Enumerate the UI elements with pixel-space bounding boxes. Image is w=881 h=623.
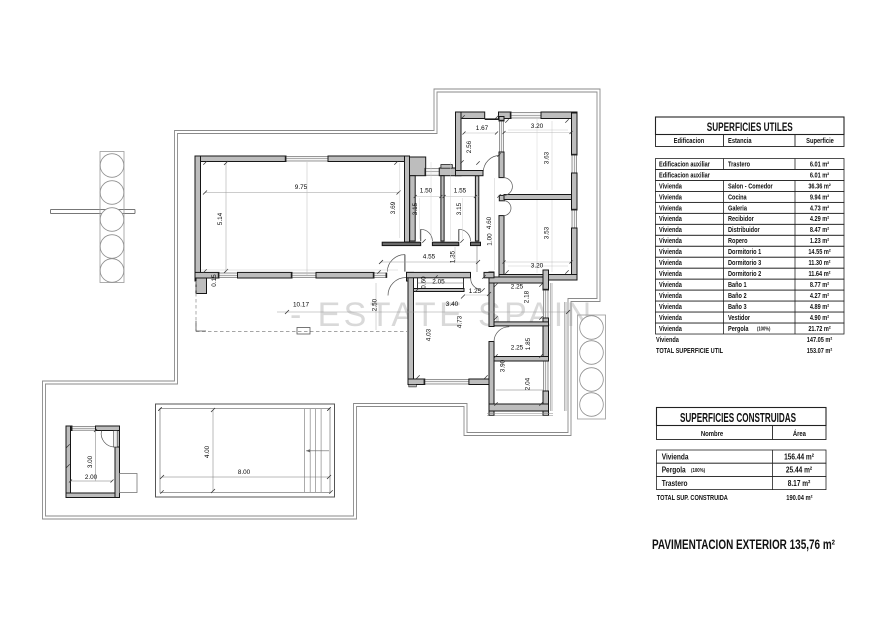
svg-text:Vivienda: Vivienda: [659, 314, 682, 322]
svg-text:36.36 m²: 36.36 m²: [808, 183, 830, 191]
svg-text:TOTAL SUP. CONSTRUIDA: TOTAL SUP. CONSTRUIDA: [657, 494, 728, 502]
svg-text:156.44 m²: 156.44 m²: [784, 452, 814, 462]
svg-text:8.17 m²: 8.17 m²: [788, 478, 811, 488]
svg-text:1.35: 1.35: [450, 250, 457, 263]
svg-text:147.05 m²: 147.05 m²: [807, 336, 832, 344]
svg-text:190.04 m²: 190.04 m²: [786, 494, 813, 502]
svg-text:6.01 m²: 6.01 m²: [810, 161, 829, 169]
svg-text:Vivienda: Vivienda: [659, 194, 682, 202]
svg-text:Pergola: Pergola: [662, 465, 687, 475]
svg-text:Edificacion auxiliar: Edificacion auxiliar: [659, 172, 710, 180]
svg-text:3.90: 3.90: [500, 359, 507, 372]
svg-text:Vivienda: Vivienda: [659, 282, 682, 290]
svg-text:2.05: 2.05: [432, 279, 445, 286]
svg-text:Vivienda: Vivienda: [659, 216, 682, 224]
svg-text:4.89 m²: 4.89 m²: [810, 303, 829, 311]
svg-text:Vivienda: Vivienda: [659, 303, 682, 311]
svg-text:Vivienda: Vivienda: [659, 292, 682, 300]
svg-text:4.27 m²: 4.27 m²: [810, 292, 829, 300]
svg-text:Baño 2: Baño 2: [728, 292, 747, 300]
svg-text:5.14: 5.14: [217, 212, 224, 225]
svg-text:2.50: 2.50: [372, 298, 379, 311]
svg-text:Baño 3: Baño 3: [728, 303, 747, 311]
svg-text:2.25: 2.25: [511, 284, 524, 291]
svg-text:3.53: 3.53: [544, 226, 551, 239]
svg-text:Vivienda: Vivienda: [662, 452, 689, 462]
svg-text:4.60: 4.60: [486, 216, 493, 229]
svg-text:1.67: 1.67: [476, 125, 489, 132]
svg-text:1.85: 1.85: [525, 337, 532, 350]
svg-text:Trastero: Trastero: [662, 478, 688, 488]
svg-text:Baño 1: Baño 1: [728, 282, 747, 290]
svg-text:21.72 m²: 21.72 m²: [808, 325, 830, 333]
svg-text:1.23 m²: 1.23 m²: [810, 238, 829, 246]
svg-text:Dormitorio 1: Dormitorio 1: [728, 249, 762, 257]
svg-text:Dormitorio 3: Dormitorio 3: [728, 260, 762, 268]
svg-text:11.30 m²: 11.30 m²: [808, 260, 830, 268]
svg-text:2.25: 2.25: [511, 345, 524, 352]
svg-text:8.77 m²: 8.77 m²: [810, 282, 829, 290]
svg-text:(100%): (100%): [757, 326, 771, 332]
svg-text:3.40: 3.40: [446, 301, 459, 308]
svg-text:4.73: 4.73: [457, 315, 464, 328]
svg-text:4.55: 4.55: [423, 254, 436, 261]
svg-text:Vivienda: Vivienda: [659, 238, 682, 246]
svg-text:3.63: 3.63: [544, 151, 551, 164]
svg-text:Vivienda: Vivienda: [656, 336, 679, 344]
svg-text:3.20: 3.20: [531, 123, 544, 130]
svg-text:Vivienda: Vivienda: [659, 227, 682, 235]
svg-text:Edificacion auxiliar: Edificacion auxiliar: [659, 161, 710, 169]
svg-text:3.15: 3.15: [456, 202, 463, 215]
svg-text:Estancia: Estancia: [728, 138, 752, 146]
svg-text:0.60: 0.60: [421, 276, 428, 289]
svg-text:4.90 m²: 4.90 m²: [810, 314, 829, 322]
svg-text:9.94 m²: 9.94 m²: [810, 194, 829, 202]
svg-text:1.55: 1.55: [454, 188, 467, 195]
svg-text:4.00: 4.00: [204, 445, 211, 458]
svg-text:14.55 m²: 14.55 m²: [808, 249, 830, 257]
svg-text:PAVIMENTACION EXTERIOR 135,76: PAVIMENTACION EXTERIOR 135,76 m²: [652, 537, 835, 552]
svg-text:Vivienda: Vivienda: [659, 183, 682, 191]
svg-text:Ropero: Ropero: [728, 238, 748, 246]
svg-text:Vivienda: Vivienda: [659, 260, 682, 268]
svg-text:3.00: 3.00: [87, 455, 94, 468]
svg-text:2.04: 2.04: [525, 377, 532, 390]
svg-text:Vivienda: Vivienda: [659, 325, 682, 333]
svg-text:2.18: 2.18: [524, 290, 531, 303]
svg-text:Distribuidor: Distribuidor: [728, 227, 760, 235]
svg-text:Trastero: Trastero: [728, 161, 750, 169]
svg-text:Edificacion: Edificacion: [674, 138, 705, 146]
svg-text:Pergola: Pergola: [728, 325, 749, 333]
svg-text:4.29 m²: 4.29 m²: [810, 216, 829, 224]
svg-text:Cocina: Cocina: [728, 194, 747, 202]
svg-text:8.47 m²: 8.47 m²: [810, 227, 829, 235]
svg-text:10.17: 10.17: [293, 302, 309, 309]
svg-text:Nombre: Nombre: [701, 430, 724, 438]
svg-text:0.15: 0.15: [211, 274, 218, 287]
svg-text:Recibidor: Recibidor: [728, 216, 754, 224]
svg-text:1.50: 1.50: [420, 188, 433, 195]
svg-text:3.69: 3.69: [390, 201, 397, 214]
svg-text:Dormitorio 2: Dormitorio 2: [728, 271, 762, 279]
svg-text:Vivienda: Vivienda: [659, 271, 682, 279]
svg-text:8.00: 8.00: [238, 469, 251, 476]
svg-text:Vivienda: Vivienda: [659, 205, 682, 213]
svg-text:9.75: 9.75: [295, 184, 308, 191]
svg-text:11.64 m²: 11.64 m²: [808, 271, 830, 279]
svg-text:2.56: 2.56: [466, 140, 473, 153]
svg-text:SUPERFICIES CONSTRUIDAS: SUPERFICIES CONSTRUIDAS: [680, 411, 796, 425]
svg-text:4.73 m²: 4.73 m²: [810, 205, 829, 213]
svg-text:6.01 m²: 6.01 m²: [810, 172, 829, 180]
svg-text:SUPERFICIES UTILES: SUPERFICIES UTILES: [707, 120, 793, 134]
svg-text:25.44 m²: 25.44 m²: [786, 465, 813, 475]
svg-text:1.25: 1.25: [469, 288, 482, 295]
svg-text:Área: Área: [793, 428, 806, 438]
svg-text:TOTAL SUPERFICIE UTIL: TOTAL SUPERFICIE UTIL: [656, 347, 723, 355]
svg-text:Vivienda: Vivienda: [659, 249, 682, 257]
svg-text:(100%): (100%): [691, 468, 705, 475]
svg-text:Salon - Comedor: Salon - Comedor: [728, 183, 773, 191]
svg-text:3.15: 3.15: [412, 202, 419, 215]
svg-text:3.20: 3.20: [531, 263, 544, 270]
svg-text:153.07 m²: 153.07 m²: [807, 347, 832, 355]
svg-text:4.03: 4.03: [426, 328, 433, 341]
svg-text:Vestidor: Vestidor: [728, 314, 751, 322]
svg-text:1.00: 1.00: [487, 233, 494, 246]
svg-text:Superficie: Superficie: [806, 138, 834, 146]
svg-text:Galeria: Galeria: [728, 205, 747, 213]
